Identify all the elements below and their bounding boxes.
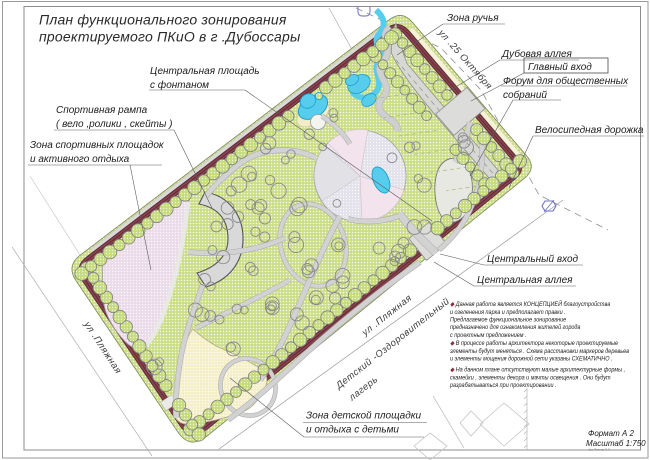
svg-text:◆ Данная работа является КОНЦЕ: ◆ Данная работа является КОНЦЕПЦИЕЙ благ… bbox=[450, 300, 611, 309]
svg-text:разрабатываться при проектиров: разрабатываться при проектировании . bbox=[449, 383, 557, 389]
svg-text:Центральный вход: Центральный вход bbox=[487, 254, 579, 265]
svg-text:скамейки , элементы декора и м: скамейки , элементы декора и мачты освещ… bbox=[450, 374, 611, 381]
svg-text:Зона детской площадки: Зона детской площадки bbox=[306, 411, 421, 422]
svg-text:( вело ,ролики , скейты ): ( вело ,ролики , скейты ) bbox=[56, 119, 172, 130]
svg-text:Формат А 2: Формат А 2 bbox=[588, 429, 635, 438]
svg-text:с фонтаном: с фонтаном bbox=[150, 79, 209, 91]
svg-text:с проектным предложением .: с проектным предложением . bbox=[450, 333, 527, 339]
svg-text:собраний: собраний bbox=[503, 89, 547, 101]
svg-text:Арх Прохор Е.С.: Арх Прохор Е.С. bbox=[587, 448, 611, 452]
svg-text:элементы будут меняться . Схем: элементы будут меняться . Схема расстано… bbox=[450, 349, 629, 355]
svg-text:и активного отдыха: и активного отдыха bbox=[30, 154, 130, 165]
svg-text:Зона ручья: Зона ручья bbox=[447, 13, 499, 24]
svg-text:◆ На данном плане отсутствуют: ◆ На данном плане отсутствуют малые архи… bbox=[450, 367, 625, 373]
svg-text:Велосипедная дорожка: Велосипедная дорожка bbox=[535, 125, 644, 136]
svg-text:и отдыха с детьми: и отдыха с детьми bbox=[306, 425, 399, 436]
svg-text:Центральная аллея: Центральная аллея bbox=[477, 275, 573, 286]
svg-text:и озеленения парка и предполаг: и озеленения парка и предполагает правки… bbox=[450, 310, 566, 316]
svg-text:План функционального зонирован: План функционального зонирования bbox=[39, 12, 287, 28]
svg-text:Форум для общественных: Форум для общественных bbox=[503, 75, 629, 87]
svg-text:предназначено для ознакомления: предназначено для ознакомления жителей г… bbox=[450, 324, 581, 331]
svg-text:Главный вход: Главный вход bbox=[528, 62, 592, 73]
svg-text:Зона спортивных площадок: Зона спортивных площадок bbox=[30, 140, 165, 151]
svg-text:◆ В процессе работы архитектор: ◆ В процессе работы архитектора некоторы… bbox=[450, 341, 619, 347]
svg-text:проектируемого ПКиО в г .Дубос: проектируемого ПКиО в г .Дубоссары bbox=[39, 29, 301, 45]
svg-text:Спортивная рампа: Спортивная рампа bbox=[56, 105, 148, 116]
svg-text:Предлагаемое функциональное зо: Предлагаемое функциональное зонирование bbox=[450, 317, 567, 323]
svg-text:и элементы мощения дорожной се: и элементы мощения дорожной сети указаны… bbox=[450, 355, 613, 362]
svg-text:Центральная площадь: Центральная площадь bbox=[150, 66, 260, 77]
